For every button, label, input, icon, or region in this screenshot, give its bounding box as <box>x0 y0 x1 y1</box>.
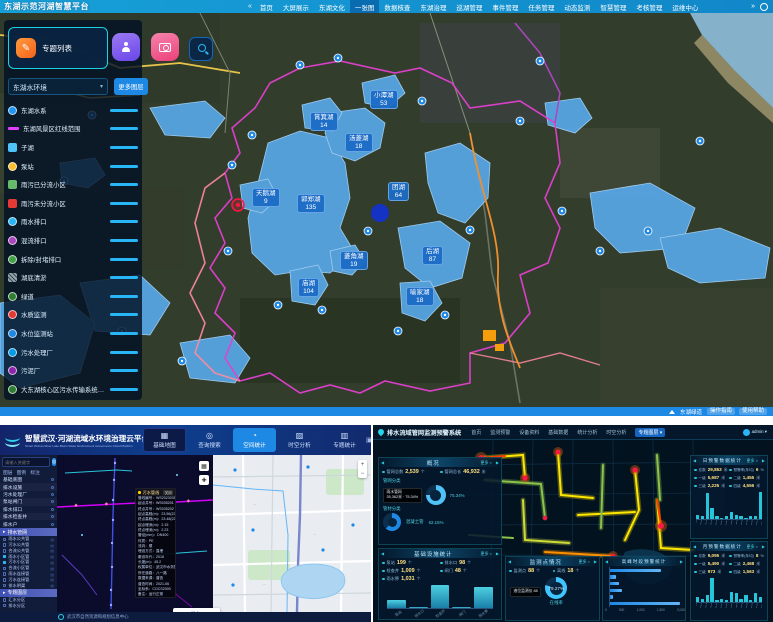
stat-item: 泵站199个 <box>382 559 440 567</box>
nav-item[interactable]: 考核管理 <box>631 0 667 13</box>
section-label: 管网分类 <box>379 477 501 485</box>
list-icon: ▤ <box>50 537 54 542</box>
theme-dropdown-value: 东湖水环境 <box>13 82 47 92</box>
lake-name: 天鹅湖 <box>256 190 276 198</box>
svg-text:—: — <box>313 532 316 536</box>
popup-rows: 管线编号：WS20230355662起点井号：WS035201终点井号：WS03… <box>136 496 175 598</box>
br-nav-item[interactable]: 首页 <box>471 429 481 436</box>
bl-tab[interactable]: ◔ 空间统计 <box>233 428 276 452</box>
map-tool-add-icon[interactable]: ✚ <box>199 475 209 485</box>
bl-tab[interactable]: ◎ 查询搜索 <box>188 428 231 452</box>
list-icon: ▤ <box>50 572 54 577</box>
lake-count: 87 <box>426 256 439 263</box>
layer-label: 污泥厂 <box>21 366 106 375</box>
bl-sidebar-tabs: 图层图例标注 <box>0 468 57 476</box>
bl-app-subtitle: Smart Wuhan River Lake Basin Water Envir… <box>25 444 131 448</box>
status-bar-button[interactable]: 操作指南 <box>707 408 735 415</box>
layer-opacity-slider[interactable] <box>110 388 138 391</box>
radio-icon <box>51 478 54 481</box>
donghu-platform-window: 小潭湖 53 筲箕湖 14 汤菱湖 18 团湖 64 天鹅湖 9 <box>0 0 773 416</box>
lake-badge[interactable]: 汤菱湖 18 <box>345 133 373 152</box>
layer-opacity-slider[interactable] <box>110 258 138 261</box>
layer-row[interactable]: 拆除/封堵排口 <box>8 250 140 269</box>
map-tool-extent-icon[interactable]: ▦ <box>199 461 209 471</box>
lake-badge[interactable]: 喻家湖 18 <box>406 287 434 306</box>
svg-text:—: — <box>253 502 256 506</box>
layer-label: 拆除/封堵排口 <box>21 255 106 264</box>
monitor-tooltip: 液位监测仪 88 <box>510 587 541 597</box>
layer-symbol-icon <box>8 329 17 338</box>
daily-warning-panel: ◀日预警数据统计更多 >▶ 总数29,853米预警率(年均)6%一级5,687米… <box>690 455 768 539</box>
layer-symbol-icon <box>8 217 17 226</box>
lake-badge[interactable]: 菱角湖 19 <box>340 251 368 270</box>
layer-symbol-icon <box>8 273 17 282</box>
top-navbar: 东湖示范河湖智慧平台 « 首页 大屏展示 东湖文化 一张图 数据核查 东湖治理 … <box>0 0 773 13</box>
chevron-down-icon: ▾ <box>100 83 103 90</box>
pipe-type-donut[interactable] <box>426 485 446 505</box>
water-drop-logo-icon <box>377 428 385 436</box>
more-link[interactable]: 更多 > <box>746 458 757 464</box>
theme-dropdown[interactable]: 东湖水环境 ▾ <box>8 78 108 95</box>
br-app-title: 排水流域管网监测预警系统 <box>387 428 461 437</box>
bl-sub2-row[interactable]: 排水分区 <box>0 603 57 609</box>
zoom-in-icon: + <box>361 462 365 468</box>
layer-row[interactable]: 雨污已分流小区 <box>8 175 140 194</box>
br-header: 排水流域管网监测预警系统 首页监测预警设备资料基础数据统计分析时空分析专题图层 … <box>373 425 773 440</box>
stat-item: 一级5,687米 <box>694 474 729 482</box>
list-icon: ▤ <box>50 543 54 548</box>
layer-label: 泵站 <box>21 162 106 171</box>
monthly-warning-panel: ◀月预警数据统计更多 >▶ 总数9,095米预警率(年均)8%一级5,490米二… <box>690 541 768 621</box>
lake-name: 菱角湖 <box>344 253 364 261</box>
bl-active-group[interactable]: ▸ 排水管网 <box>0 528 57 537</box>
user-avatar-icon[interactable] <box>760 3 768 11</box>
stat-item: 闸门48个 <box>440 567 498 575</box>
wuhan-cloud-platform-window: 智慧武汉·河湖流域水环境治理云平台 Smart Wuhan River Lake… <box>0 425 371 622</box>
tick-labels <box>696 603 762 608</box>
bl-sub2-list: 汇水分区 排水分区 <box>0 597 57 609</box>
layer-row[interactable]: 污水处理厂 <box>8 343 140 362</box>
more-link[interactable]: 更多 > <box>578 559 589 565</box>
layer-symbol-icon <box>8 310 17 319</box>
layer-symbol-icon <box>8 180 17 189</box>
layer-label: 雨水排口 <box>21 217 106 226</box>
message-icon[interactable]: ▣ <box>366 436 371 444</box>
checkbox[interactable] <box>3 584 6 587</box>
street-map[interactable]: ——— +− <box>213 455 371 612</box>
checkbox[interactable] <box>3 572 6 575</box>
lake-badge[interactable]: 庙湖 104 <box>298 278 319 297</box>
status-text: 东湖绿道 <box>680 408 702 416</box>
popup-row: 起点井号：WS035201 <box>136 501 175 506</box>
br-nav-item[interactable]: 专题图层 ▾ <box>635 428 665 437</box>
radio-icon <box>51 486 54 489</box>
layer-opacity-slider[interactable] <box>110 369 138 372</box>
nav-item[interactable]: 任务管理 <box>523 0 559 13</box>
br-nav-item[interactable]: 基础数据 <box>548 429 568 436</box>
bl-search-button[interactable]: ◎ <box>52 458 56 466</box>
radio-icon <box>51 515 54 518</box>
popup-title: 污水管线 <box>143 490 162 496</box>
nav-item[interactable]: 首页 <box>255 0 278 13</box>
more-layers-button[interactable]: 更多图层 <box>114 78 148 95</box>
map-status-bar: 东湖绿道 操作指南使用帮助 <box>0 407 773 416</box>
br-nav-item[interactable]: 设备资料 <box>519 429 539 436</box>
layer-symbol-icon <box>8 292 17 301</box>
popup-row: 备注：运行正常 <box>136 592 175 597</box>
bl-group-row[interactable]: 污水处理厂 <box>0 491 57 498</box>
stat-item: 四级1,563米 <box>729 568 764 576</box>
tab-icon: ◔ <box>252 432 257 440</box>
tab-icon: ▨ <box>296 432 304 440</box>
list-icon: ▤ <box>50 560 54 565</box>
layer-opacity-slider[interactable] <box>110 276 138 279</box>
layer-symbol-icon <box>8 143 17 152</box>
person-icon <box>122 47 130 52</box>
status-bar-button[interactable]: 使用帮助 <box>739 408 767 415</box>
layer-opacity-slider[interactable] <box>110 220 138 223</box>
bl-group-list: 基础底图 排水设施 污水处理厂 泵站闸门 <box>0 476 57 528</box>
search-icon <box>198 44 206 52</box>
layer-label: 绿道 <box>21 292 106 301</box>
alert-marker <box>232 199 244 211</box>
zoom-control[interactable]: +− <box>358 460 367 478</box>
layer-label: 污水处理厂 <box>21 348 106 357</box>
stat-item: 二级1,455米 <box>729 474 764 482</box>
nav-more-icon[interactable]: » <box>751 3 755 10</box>
radio-icon <box>51 493 54 496</box>
bl-group-row[interactable]: 排水户 <box>0 520 57 527</box>
bl-group-row[interactable]: 排水排口 <box>0 506 57 513</box>
caret-right-icon: ▸ <box>3 529 5 535</box>
bl-tab[interactable]: ▥ 专题统计 <box>323 428 366 452</box>
bl-footer: 武汉市自然资源和规划信息中心 <box>0 612 371 622</box>
dot-icon <box>138 491 141 494</box>
nav-item[interactable]: 数据核查 <box>379 0 415 13</box>
layer-symbol-icon <box>8 366 17 375</box>
more-link[interactable]: 更多 > <box>480 460 491 466</box>
lake-count: 18 <box>349 143 369 150</box>
layer-label: 雨污已分流小区 <box>21 180 106 189</box>
layer-opacity-slider[interactable] <box>110 183 138 186</box>
bl-group-row[interactable]: 泵站闸门 <box>0 498 57 505</box>
nav-item[interactable]: 动态监测 <box>559 0 595 13</box>
svg-text:—: — <box>263 582 266 586</box>
layer-symbol-icon <box>8 162 17 171</box>
layer-opacity-slider[interactable] <box>110 146 138 149</box>
facilities-panel: ◀基础设施统计更多 >▶ 泵站199个排水口98个检查井1,009个闸门48个雨… <box>378 548 502 620</box>
overview-panel: ◀概况更多 >▶ 管网总数2,539个管网总长46,932米 管网分类 雨水管网… <box>378 457 502 545</box>
layer-row[interactable]: 水质监测 <box>8 306 140 325</box>
list-icon: ▤ <box>50 577 54 582</box>
layer-symbol-icon <box>8 236 17 245</box>
wave-logo-icon <box>4 433 22 447</box>
layer-opacity-slider[interactable] <box>110 239 138 242</box>
layer-opacity-slider[interactable] <box>110 109 138 112</box>
layer-opacity-slider[interactable] <box>110 295 138 298</box>
stat-item: 离线18个 <box>553 567 597 575</box>
lake-badge[interactable]: 筲箕湖 14 <box>310 112 338 131</box>
lake-count: 135 <box>301 204 321 211</box>
caret-right-icon: ▸ <box>3 590 5 596</box>
panel-title: 概况 <box>386 459 480 467</box>
checkbox[interactable] <box>3 604 6 607</box>
stat-item: 雨水箅1,031个 <box>382 575 440 583</box>
main-menu: 首页 大屏展示 东湖文化 一张图 数据核查 东湖治理 巡湖管理 事件管理 任务管… <box>255 0 748 13</box>
lake-count: 53 <box>374 100 394 107</box>
pipe-network-map[interactable]: ▦ ✚ 污水管线 关闭 管线编号：WS20230355662起点井号：WS035… <box>57 455 213 612</box>
pipe-material-donut[interactable] <box>383 513 401 531</box>
lake-badge[interactable]: 郭郑湖 135 <box>297 194 325 213</box>
stat-item: 预警率(年均)8% <box>729 552 764 560</box>
checkbox[interactable] <box>3 538 6 541</box>
lake-count: 9 <box>256 198 276 205</box>
checkbox[interactable] <box>3 567 6 570</box>
nav-item[interactable]: 运维中心 <box>667 0 703 13</box>
layer-row[interactable]: 泵站 <box>8 157 140 176</box>
checkbox[interactable] <box>3 549 6 552</box>
avatar-icon <box>743 429 750 436</box>
section-label: 管材分类 <box>379 505 501 513</box>
online-rate-donut[interactable]: 79.27% <box>545 577 567 599</box>
layer-row[interactable]: 湖底清淤 <box>8 268 140 287</box>
layer-opacity-slider[interactable] <box>110 351 138 354</box>
zoom-out-icon: − <box>361 471 365 477</box>
checkbox[interactable] <box>3 561 6 564</box>
layer-symbol-icon <box>8 255 17 264</box>
layer-row[interactable]: 雨水排口 <box>8 213 140 232</box>
lake-name: 团湖 <box>392 184 405 192</box>
feature-popup: 污水管线 关闭 管线编号：WS20230355662起点井号：WS035201终… <box>135 488 176 598</box>
nav-item[interactable]: 大屏展示 <box>278 0 314 13</box>
layer-label: 水质监测 <box>21 310 106 319</box>
lake-name: 喻家湖 <box>410 289 430 297</box>
radio-icon <box>51 508 54 511</box>
patrol-button[interactable] <box>112 33 140 61</box>
lake-count: 64 <box>392 192 405 199</box>
bl-search-input[interactable] <box>2 457 50 467</box>
layer-symbol-icon <box>8 106 17 115</box>
footer-text: 武汉市自然资源和规划信息中心 <box>67 614 128 620</box>
donut-tooltip: 雨水管网 35,362米 · 75.34% <box>383 488 422 503</box>
monthly-warning-bar-chart[interactable] <box>696 578 762 603</box>
layer-row[interactable]: 东湖风景区红线范围 <box>8 120 140 139</box>
popup-close-button[interactable]: 关闭 <box>163 490 173 495</box>
lake-badge[interactable]: 团湖 64 <box>388 182 409 201</box>
stat-item: 四级4,556米 <box>729 482 764 490</box>
nav-item[interactable]: 一张图 <box>350 0 380 13</box>
stat-item: 预警率(年均)6% <box>729 466 764 474</box>
layer-row[interactable]: 绿道 <box>8 287 140 306</box>
layer-label: 子湖 <box>21 143 106 152</box>
bl-sidebar: ◎ 图层图例标注 基础底图 排水设施 <box>0 455 57 612</box>
lake-count: 14 <box>314 122 334 129</box>
lake-name: 筲箕湖 <box>314 114 334 122</box>
br-nav-item[interactable]: 监测预警 <box>490 429 510 436</box>
layer-symbol-icon <box>8 348 17 357</box>
radio-icon <box>51 523 54 526</box>
lake-badge[interactable]: 小潭湖 53 <box>370 90 398 109</box>
stat-item: 检查井1,009个 <box>382 567 440 575</box>
layer-label: 水位监测站 <box>21 329 106 338</box>
layer-symbol-icon <box>8 199 17 208</box>
layer-label: 混流排口 <box>21 236 106 245</box>
layer-row[interactable]: 混流排口 <box>8 231 140 250</box>
lake-count: 18 <box>410 297 430 304</box>
checkbox[interactable] <box>3 543 6 546</box>
lake-name: 汤菱湖 <box>349 135 369 143</box>
layer-label: 大东湖核心区污水传输系统工程 <box>21 385 106 394</box>
bl-sidebar-tab[interactable]: 图例 <box>17 469 27 476</box>
bl-sidebar-tab[interactable]: 标注 <box>30 469 40 476</box>
monitor-panel: ◀监测点情况更多 >▶ 监测点88个离线18个 液位监测仪 88 79.27% … <box>505 556 600 621</box>
layer-row[interactable]: 水位监测站 <box>8 324 140 343</box>
layer-opacity-slider[interactable] <box>110 202 138 205</box>
layer-label: 东湖水系 <box>21 106 106 115</box>
stat-item: 二级2,468米 <box>729 560 764 568</box>
br-nav-item[interactable]: 时空分析 <box>606 429 626 436</box>
br-user[interactable]: admin ▾ <box>743 429 773 436</box>
checkbox[interactable] <box>3 555 6 558</box>
list-icon: ▤ <box>50 548 54 553</box>
layer-opacity-slider[interactable] <box>110 332 138 335</box>
lake-badge[interactable]: 天鹅湖 9 <box>252 188 280 207</box>
layer-row[interactable]: 东湖水系 <box>8 101 140 120</box>
lake-name: 小潭湖 <box>374 92 394 100</box>
layer-label: 湖底清淤 <box>21 273 106 282</box>
radio-icon <box>51 500 54 503</box>
tick-labels <box>696 520 762 525</box>
layer-row[interactable]: 子湖 <box>8 138 140 157</box>
more-link[interactable]: 更多 > <box>746 544 757 550</box>
checkbox[interactable] <box>3 578 6 581</box>
pen-icon: ✎ <box>16 38 36 58</box>
stat-item: 一级5,490米 <box>694 560 729 568</box>
lake-name: 后湖 <box>426 248 439 256</box>
br-nav-item[interactable]: 统计分析 <box>577 429 597 436</box>
triangle-icon <box>669 410 675 414</box>
search-button[interactable] <box>189 37 213 61</box>
layer-row[interactable]: 污泥厂 <box>8 361 140 380</box>
lake-name: 庙湖 <box>302 280 315 288</box>
stat-item: 监测点88个 <box>509 567 553 575</box>
nav-item[interactable]: 智慧管理 <box>595 0 631 13</box>
more-link[interactable]: 更多 > <box>480 551 491 557</box>
list-icon: ▤ <box>50 554 54 559</box>
stat-item: 总数29,853米 <box>694 466 729 474</box>
lake-count: 19 <box>344 261 364 268</box>
list-icon: ▤ <box>50 566 54 571</box>
tab-icon: ▥ <box>341 432 349 440</box>
stat-item: 管网总数2,539个 <box>382 468 440 476</box>
peak-warning-panel: ◀高峰时段预警统计▶ 05001,0001,5002,000 <box>602 556 686 621</box>
layer-list: 东湖水系 东湖风景区红线范围 子湖 泵站 <box>8 101 140 399</box>
status-buttons: 操作指南使用帮助 <box>707 408 767 415</box>
popup-row: 终点高程(m)：23.48(22.35) <box>136 517 175 522</box>
topic-list-label: 专题列表 <box>42 43 72 54</box>
tab-icon: ◎ <box>206 432 213 440</box>
br-nav: 首页监测预警设备资料基础数据统计分析时空分析专题图层 ▾ <box>471 428 742 437</box>
stat-item: 总数9,095米 <box>694 552 729 560</box>
camera-icon <box>159 43 171 52</box>
chevron-left-icon[interactable]: « <box>248 3 252 10</box>
daily-warning-bar-chart[interactable] <box>696 492 762 520</box>
bl-layer-checklist: 雨水公共管 ▤ 污水公共管 ▤ 合流公共管 ▤ <box>0 536 57 588</box>
pipe-monitor-dashboard-window: 排水流域管网监测预警系统 首页监测预警设备资料基础数据统计分析时空分析专题图层 … <box>373 425 773 622</box>
lake-badge[interactable]: 后湖 87 <box>422 246 443 265</box>
layer-opacity-slider[interactable] <box>110 313 138 316</box>
bl-tab[interactable]: ▨ 时空分析 <box>278 428 321 452</box>
nav-item[interactable]: 东湖治理 <box>415 0 451 13</box>
layer-row[interactable]: 雨污未分流小区 <box>8 194 140 213</box>
nav-item[interactable]: 巡湖管理 <box>451 0 487 13</box>
layer-opacity-slider[interactable] <box>110 165 138 168</box>
tab-icon: ▦ <box>161 432 169 440</box>
bl-group-row[interactable]: 排水检查井 <box>0 513 57 520</box>
bl-main-tabs: ▦ 基础地图 ◎ 查询搜索 ◔ 空间统计 ▨ 时空分析 <box>143 428 366 452</box>
list-icon: ▤ <box>50 583 54 588</box>
layer-opacity-slider[interactable] <box>110 127 138 130</box>
layer-label: 雨污未分流小区 <box>21 199 106 208</box>
bl-app-title: 智慧武汉·河湖流域水环境治理云平台 <box>25 433 143 444</box>
camera-button[interactable] <box>151 33 179 61</box>
nav-item[interactable]: 事件管理 <box>487 0 523 13</box>
checkbox[interactable] <box>3 598 6 601</box>
lake-count: 104 <box>302 288 315 295</box>
bl-group-row[interactable]: 基础底图 <box>0 476 57 483</box>
bl-sidebar-tab[interactable]: 图层 <box>3 469 13 476</box>
stat-item: 三级2,225米 <box>694 482 729 490</box>
nav-item[interactable]: 东湖文化 <box>314 0 350 13</box>
bl-group-row[interactable]: 排水设施 <box>0 483 57 490</box>
layer-symbol-icon <box>8 385 17 394</box>
bl-group2[interactable]: ▸ 专题图层 <box>0 589 57 598</box>
lake-name: 郭郑湖 <box>301 196 321 204</box>
bl-tab[interactable]: ▦ 基础地图 <box>143 428 186 452</box>
facilities-bar-chart[interactable] <box>387 585 493 609</box>
peak-hbar-chart[interactable] <box>609 567 681 607</box>
layer-row[interactable]: 大东湖核心区污水传输系统工程 <box>8 380 140 399</box>
footer-logo-icon <box>58 614 64 620</box>
stat-item: 三级973米 <box>694 568 729 576</box>
bl-header: 智慧武汉·河湖流域水环境治理云平台 Smart Wuhan River Lake… <box>0 425 371 455</box>
layer-label: 东湖风景区红线范围 <box>23 124 106 133</box>
stat-item: 排水口98个 <box>440 559 498 567</box>
topic-list-button[interactable]: ✎ 专题列表 <box>8 27 108 69</box>
app-title: 东湖示范河湖智慧平台 <box>0 1 248 12</box>
layer-symbol-icon <box>8 127 19 130</box>
stat-item: 管网总长46,932米 <box>440 468 498 476</box>
